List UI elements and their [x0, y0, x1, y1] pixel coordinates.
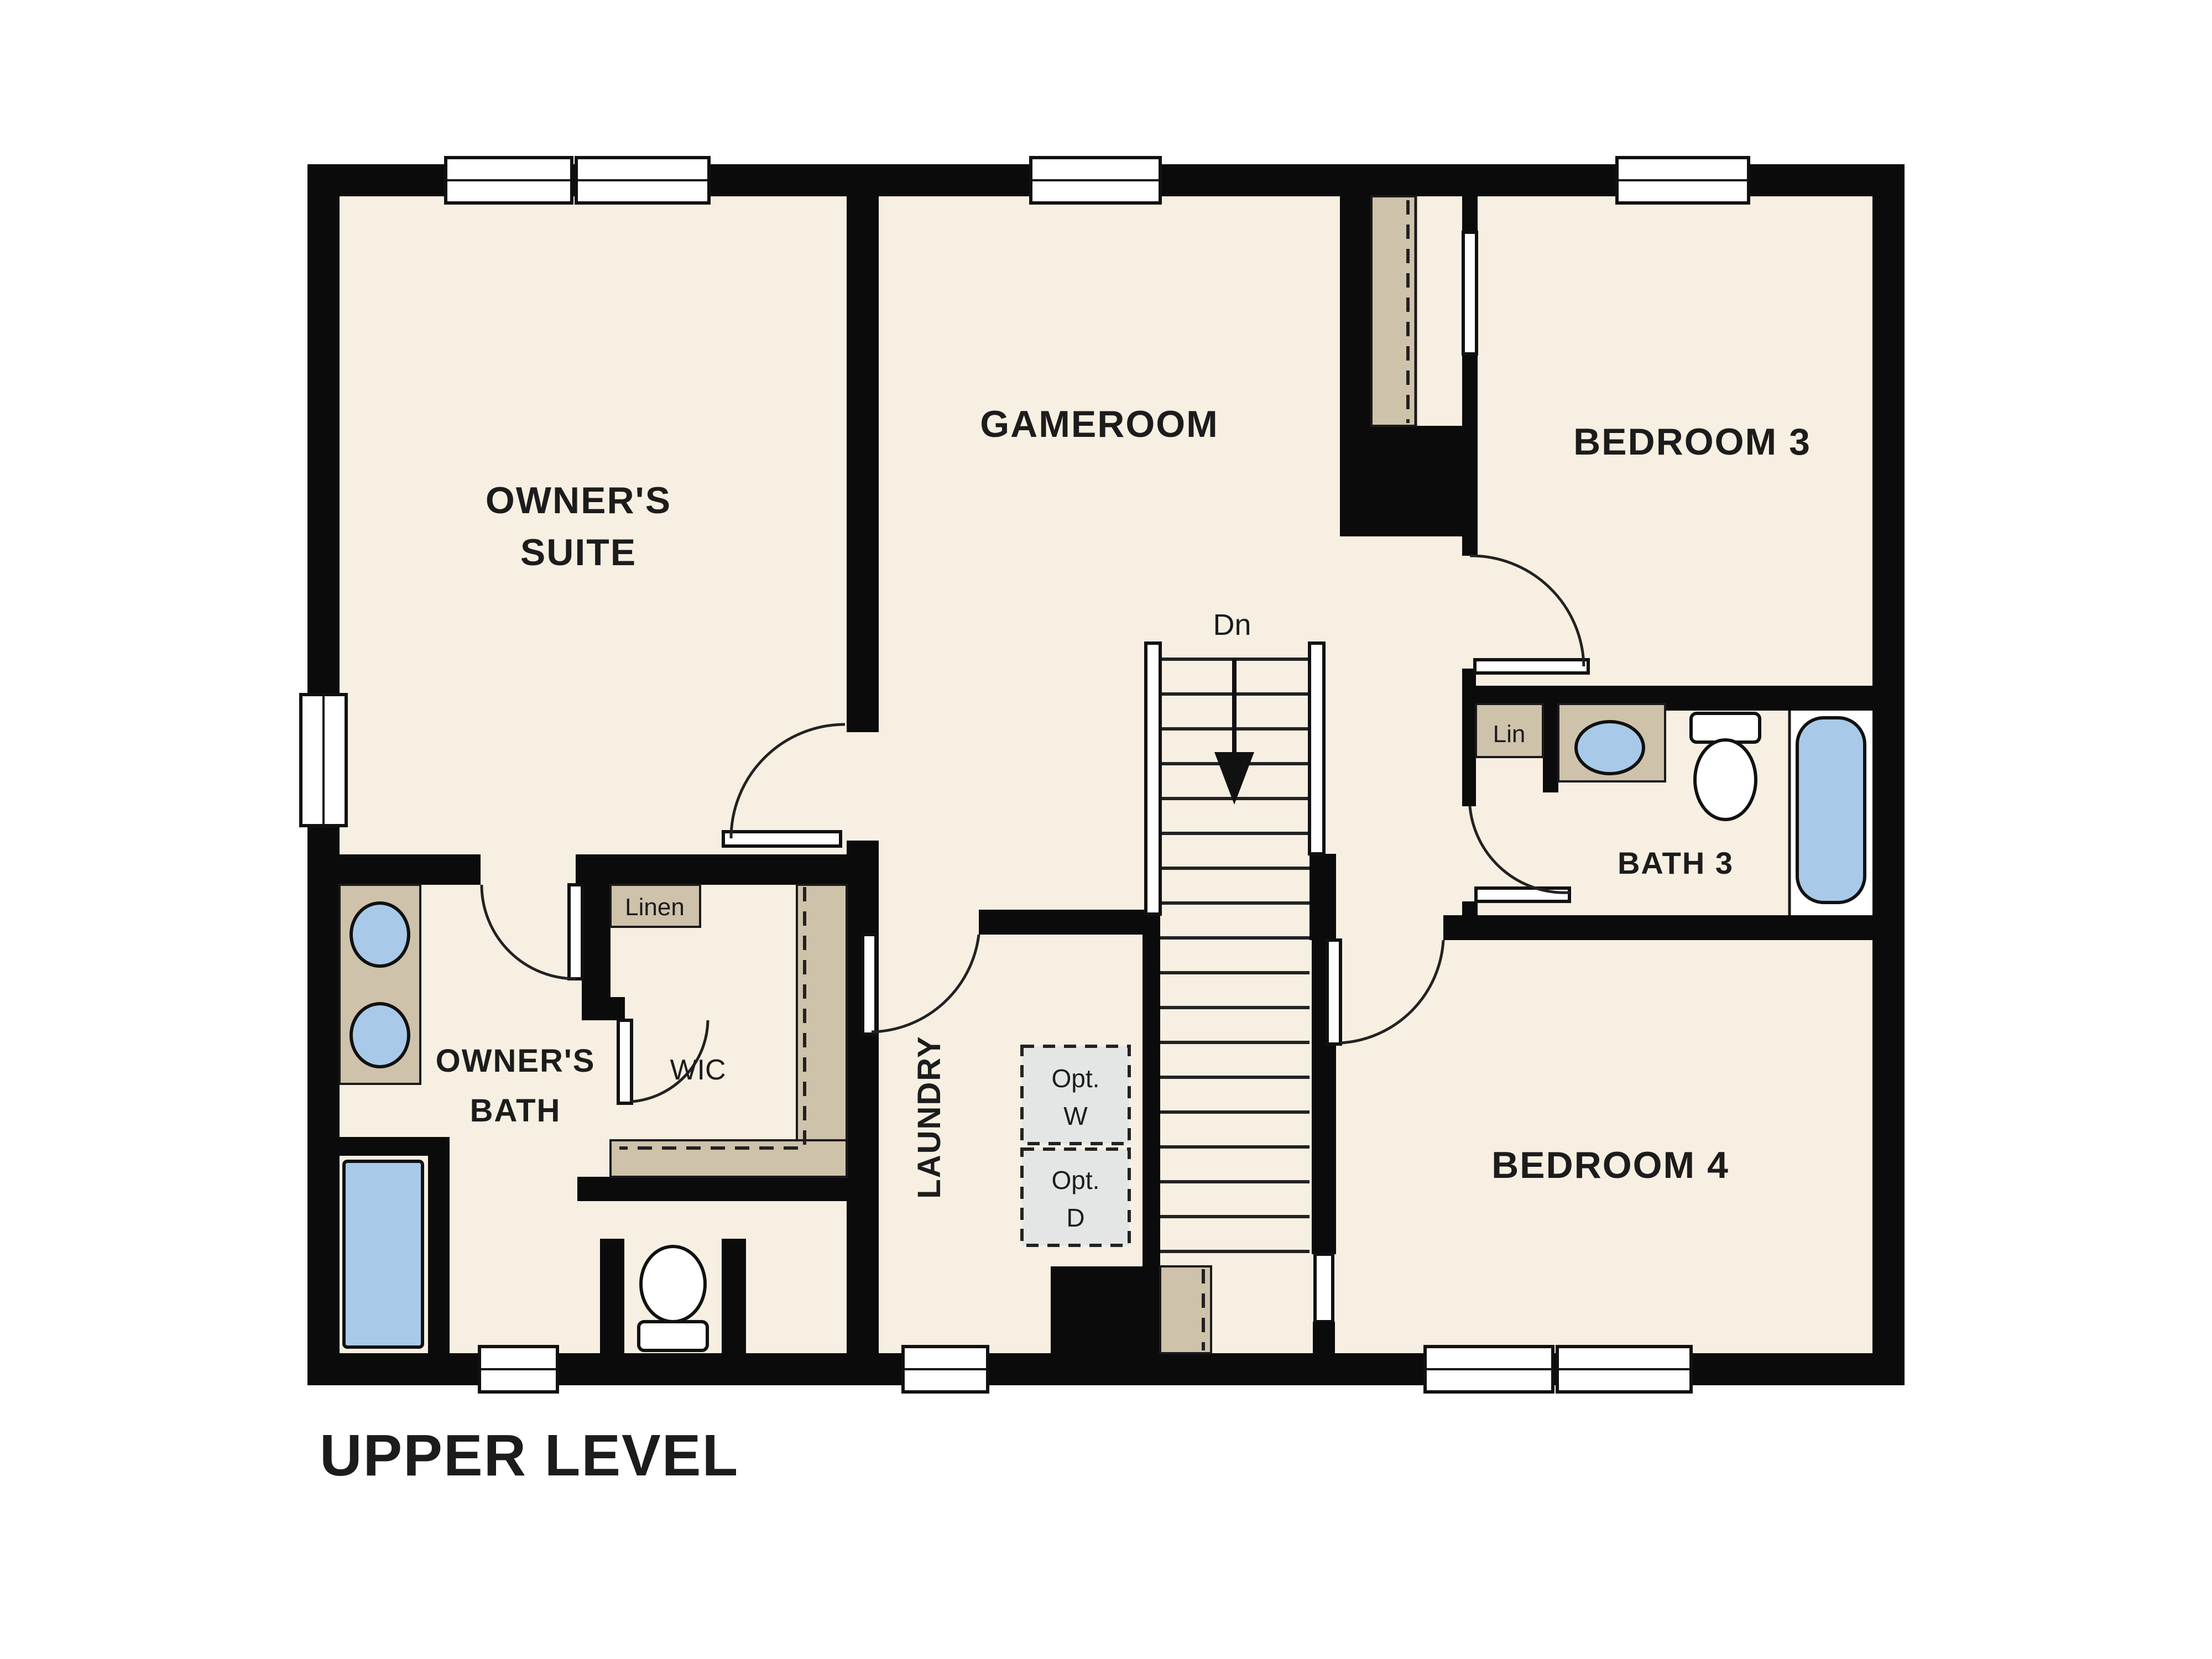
wall-wic-bottom: [577, 1177, 879, 1201]
bath3-toilet-bowl: [1695, 740, 1756, 820]
optional-dryer-label-line2: D: [1066, 1203, 1084, 1232]
stair-half-wall-post: [1313, 1322, 1335, 1353]
wall-toilet-nook-left: [600, 1239, 624, 1353]
room-label-bedroom4: BEDROOM 4: [1491, 1144, 1729, 1186]
room-label-owners-suite-line2: SUITE: [520, 531, 637, 573]
floor-plan-upper-level: OWNER'S SUITE GAMEROOM BEDROOM 3 BEDROOM…: [0, 0, 2212, 1659]
wall-bedroom3-left-a: [1462, 196, 1478, 232]
stairs-rail-right: [1310, 643, 1324, 854]
plan-title: UPPER LEVEL: [320, 1423, 739, 1488]
wall-bedroom4-top-east: [1443, 915, 1872, 940]
room-label-gameroom: GAMEROOM: [980, 403, 1219, 445]
wall-shower-right: [428, 1156, 450, 1353]
owners-bath-door-leaf: [569, 885, 582, 979]
room-label-owners-bath-line2: BATH: [470, 1093, 561, 1129]
closet-label-linen: Linen: [625, 894, 685, 921]
wall-bedroom3-left-c: [1462, 536, 1478, 556]
bath3-tub: [1797, 718, 1865, 902]
bedroom4-door-leaf: [1327, 940, 1340, 1044]
wall-toilet-nook-right: [722, 1239, 746, 1353]
optional-washer-label-line2: W: [1063, 1102, 1088, 1130]
optional-dryer-label-line1: Opt.: [1052, 1166, 1100, 1194]
owners-bath-toilet-bowl: [641, 1246, 705, 1322]
owners-suite-door-leaf: [723, 832, 841, 846]
chase-access-panel: [1463, 232, 1477, 354]
wall-chase-block: [1340, 426, 1478, 536]
owners-bath-toilet-tank: [639, 1322, 707, 1350]
wall-laundry-top: [979, 910, 1160, 935]
room-label-laundry: LAUNDRY: [911, 1035, 947, 1198]
optional-washer-label-line1: Opt.: [1052, 1064, 1100, 1093]
bath3-sink: [1576, 722, 1644, 774]
room-label-bath3: BATH 3: [1618, 846, 1734, 880]
stair-half-wall: [1315, 1254, 1333, 1322]
wall-suite-south-west: [340, 854, 481, 885]
wall-bath3-vanity-divider: [1543, 704, 1558, 792]
wall-bedroom3-left-b: [1462, 354, 1478, 426]
owners-bath-sink-1: [351, 903, 409, 966]
bedroom3-door-leaf: [1475, 660, 1588, 673]
bath3-toilet-tank: [1691, 713, 1760, 742]
floor-plan-page: OWNER'S SUITE GAMEROOM BEDROOM 3 BEDROOM…: [0, 0, 2212, 1659]
owners-bath-sink-2: [351, 1004, 409, 1067]
owners-bath-shower: [344, 1161, 422, 1347]
wall-suite-south-east: [576, 854, 879, 885]
bath3-door-leaf: [1476, 888, 1569, 901]
wall-stair-left: [1142, 915, 1160, 1266]
room-label-owners-suite-line1: OWNER'S: [486, 479, 671, 521]
wall-suite-gameroom: [847, 196, 879, 732]
stairs-down-label: Dn: [1213, 608, 1251, 641]
room-label-owners-bath-line1: OWNER'S: [436, 1043, 596, 1079]
wic-door-leaf: [618, 1020, 632, 1103]
wall-bath3-left-stub: [1462, 901, 1478, 915]
room-label-wic: WIC: [670, 1054, 726, 1086]
closet-label-lin: Lin: [1493, 721, 1526, 748]
stairs-rail-left: [1146, 643, 1160, 914]
laundry-door-leaf: [863, 935, 876, 1034]
wall-exterior-right: [1872, 164, 1905, 1385]
room-label-bedroom3: BEDROOM 3: [1573, 421, 1811, 463]
wic-shelf-bottom: [611, 1140, 847, 1177]
wall-bedroom4-top-west: [1310, 915, 1334, 940]
wall-shower-top: [340, 1137, 450, 1156]
wall-stair-bottom-block: [1051, 1266, 1160, 1353]
wall-chase-left: [1340, 196, 1371, 426]
wall-wic-door-stub: [582, 997, 625, 1020]
